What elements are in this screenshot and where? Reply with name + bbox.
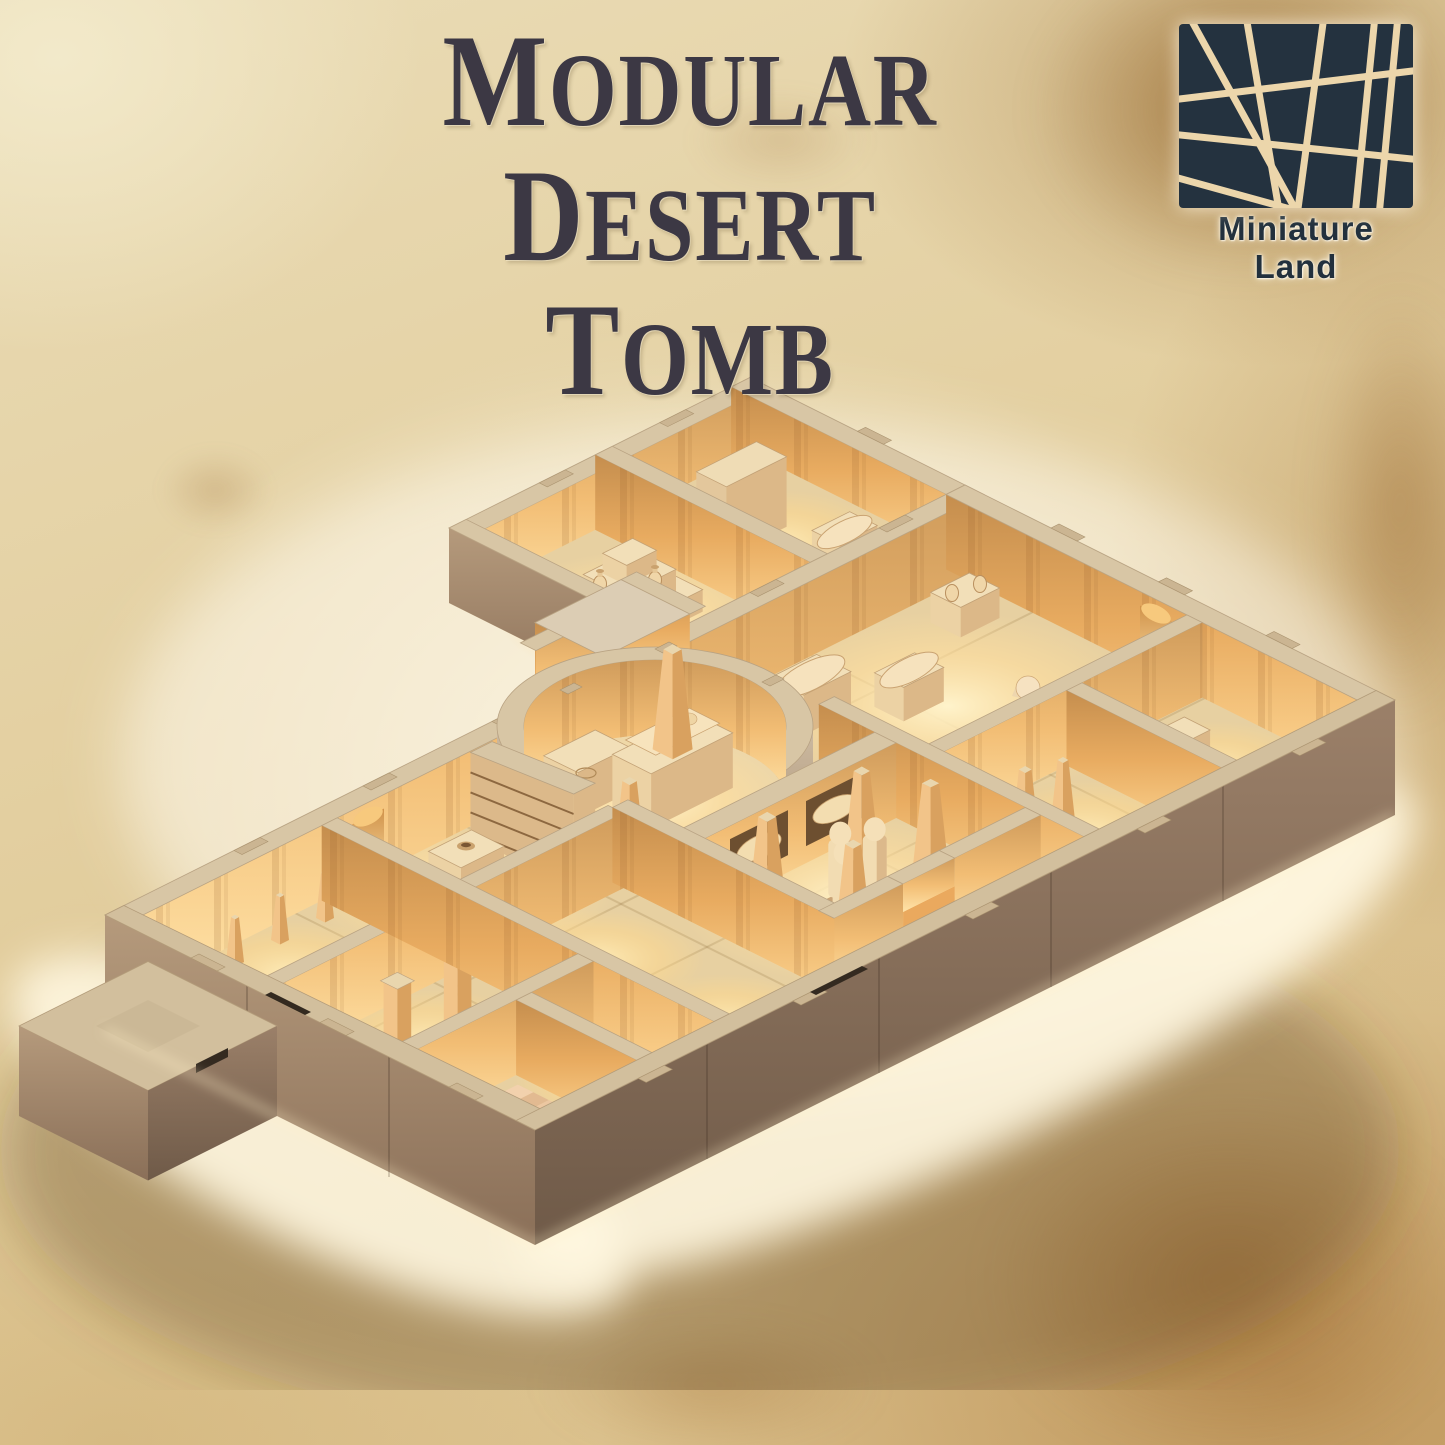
title-line-3: TOMB	[236, 283, 1143, 418]
brand-logo-mark	[1179, 24, 1413, 208]
title-line-2: DESERT	[236, 149, 1143, 284]
product-poster: MODULAR DESERT TOMB Miniature Land	[0, 0, 1445, 1445]
title-initial: D	[503, 142, 585, 289]
brand-name: Miniature Land	[1172, 210, 1420, 286]
title-initial: T	[545, 276, 621, 423]
product-title: MODULAR DESERT TOMB	[150, 14, 1230, 418]
title-rest: OMB	[621, 302, 835, 417]
title-initial: M	[442, 7, 548, 154]
tomb-model-photo	[0, 290, 1445, 1390]
title-rest: ODULAR	[549, 33, 938, 148]
title-line-1: MODULAR	[236, 14, 1143, 149]
title-rest: ESERT	[585, 168, 877, 283]
brand-logo: Miniature Land	[1172, 24, 1420, 286]
